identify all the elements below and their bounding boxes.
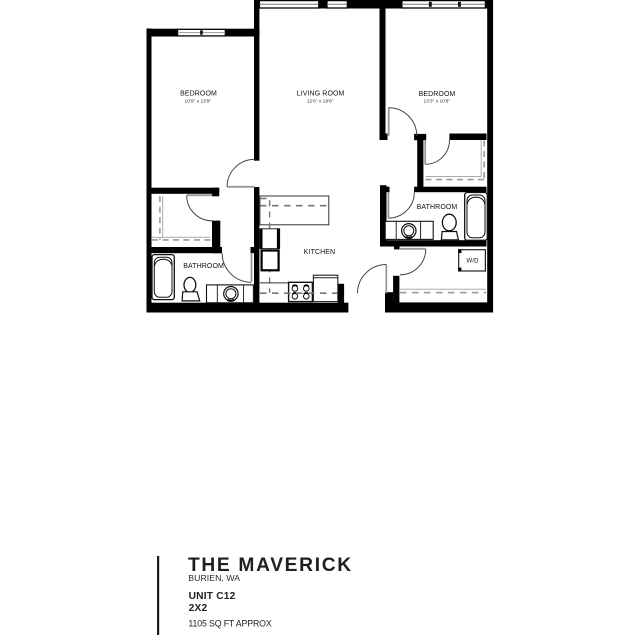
svg-text:LIVING ROOM: LIVING ROOM <box>297 91 345 98</box>
svg-text:2X2: 2X2 <box>189 603 208 614</box>
svg-text:UNIT C12: UNIT C12 <box>189 591 236 602</box>
svg-text:W/D: W/D <box>466 259 479 265</box>
svg-text:BEDROOM: BEDROOM <box>180 90 217 97</box>
svg-text:BATHROOM: BATHROOM <box>417 204 458 211</box>
svg-text:1105 SQ FT APPROX: 1105 SQ FT APPROX <box>188 618 271 628</box>
svg-text:BATHROOM: BATHROOM <box>183 263 224 270</box>
svg-text:10'9" x 13'9": 10'9" x 13'9" <box>185 98 212 103</box>
svg-text:12'6" x 19'6": 12'6" x 19'6" <box>307 98 334 103</box>
svg-text:BEDROOM: BEDROOM <box>419 91 456 98</box>
svg-text:13'3" x 10'9": 13'3" x 10'9" <box>424 98 451 103</box>
svg-text:BURIEN, WA: BURIEN, WA <box>188 573 240 583</box>
svg-text:KITCHEN: KITCHEN <box>304 249 335 256</box>
